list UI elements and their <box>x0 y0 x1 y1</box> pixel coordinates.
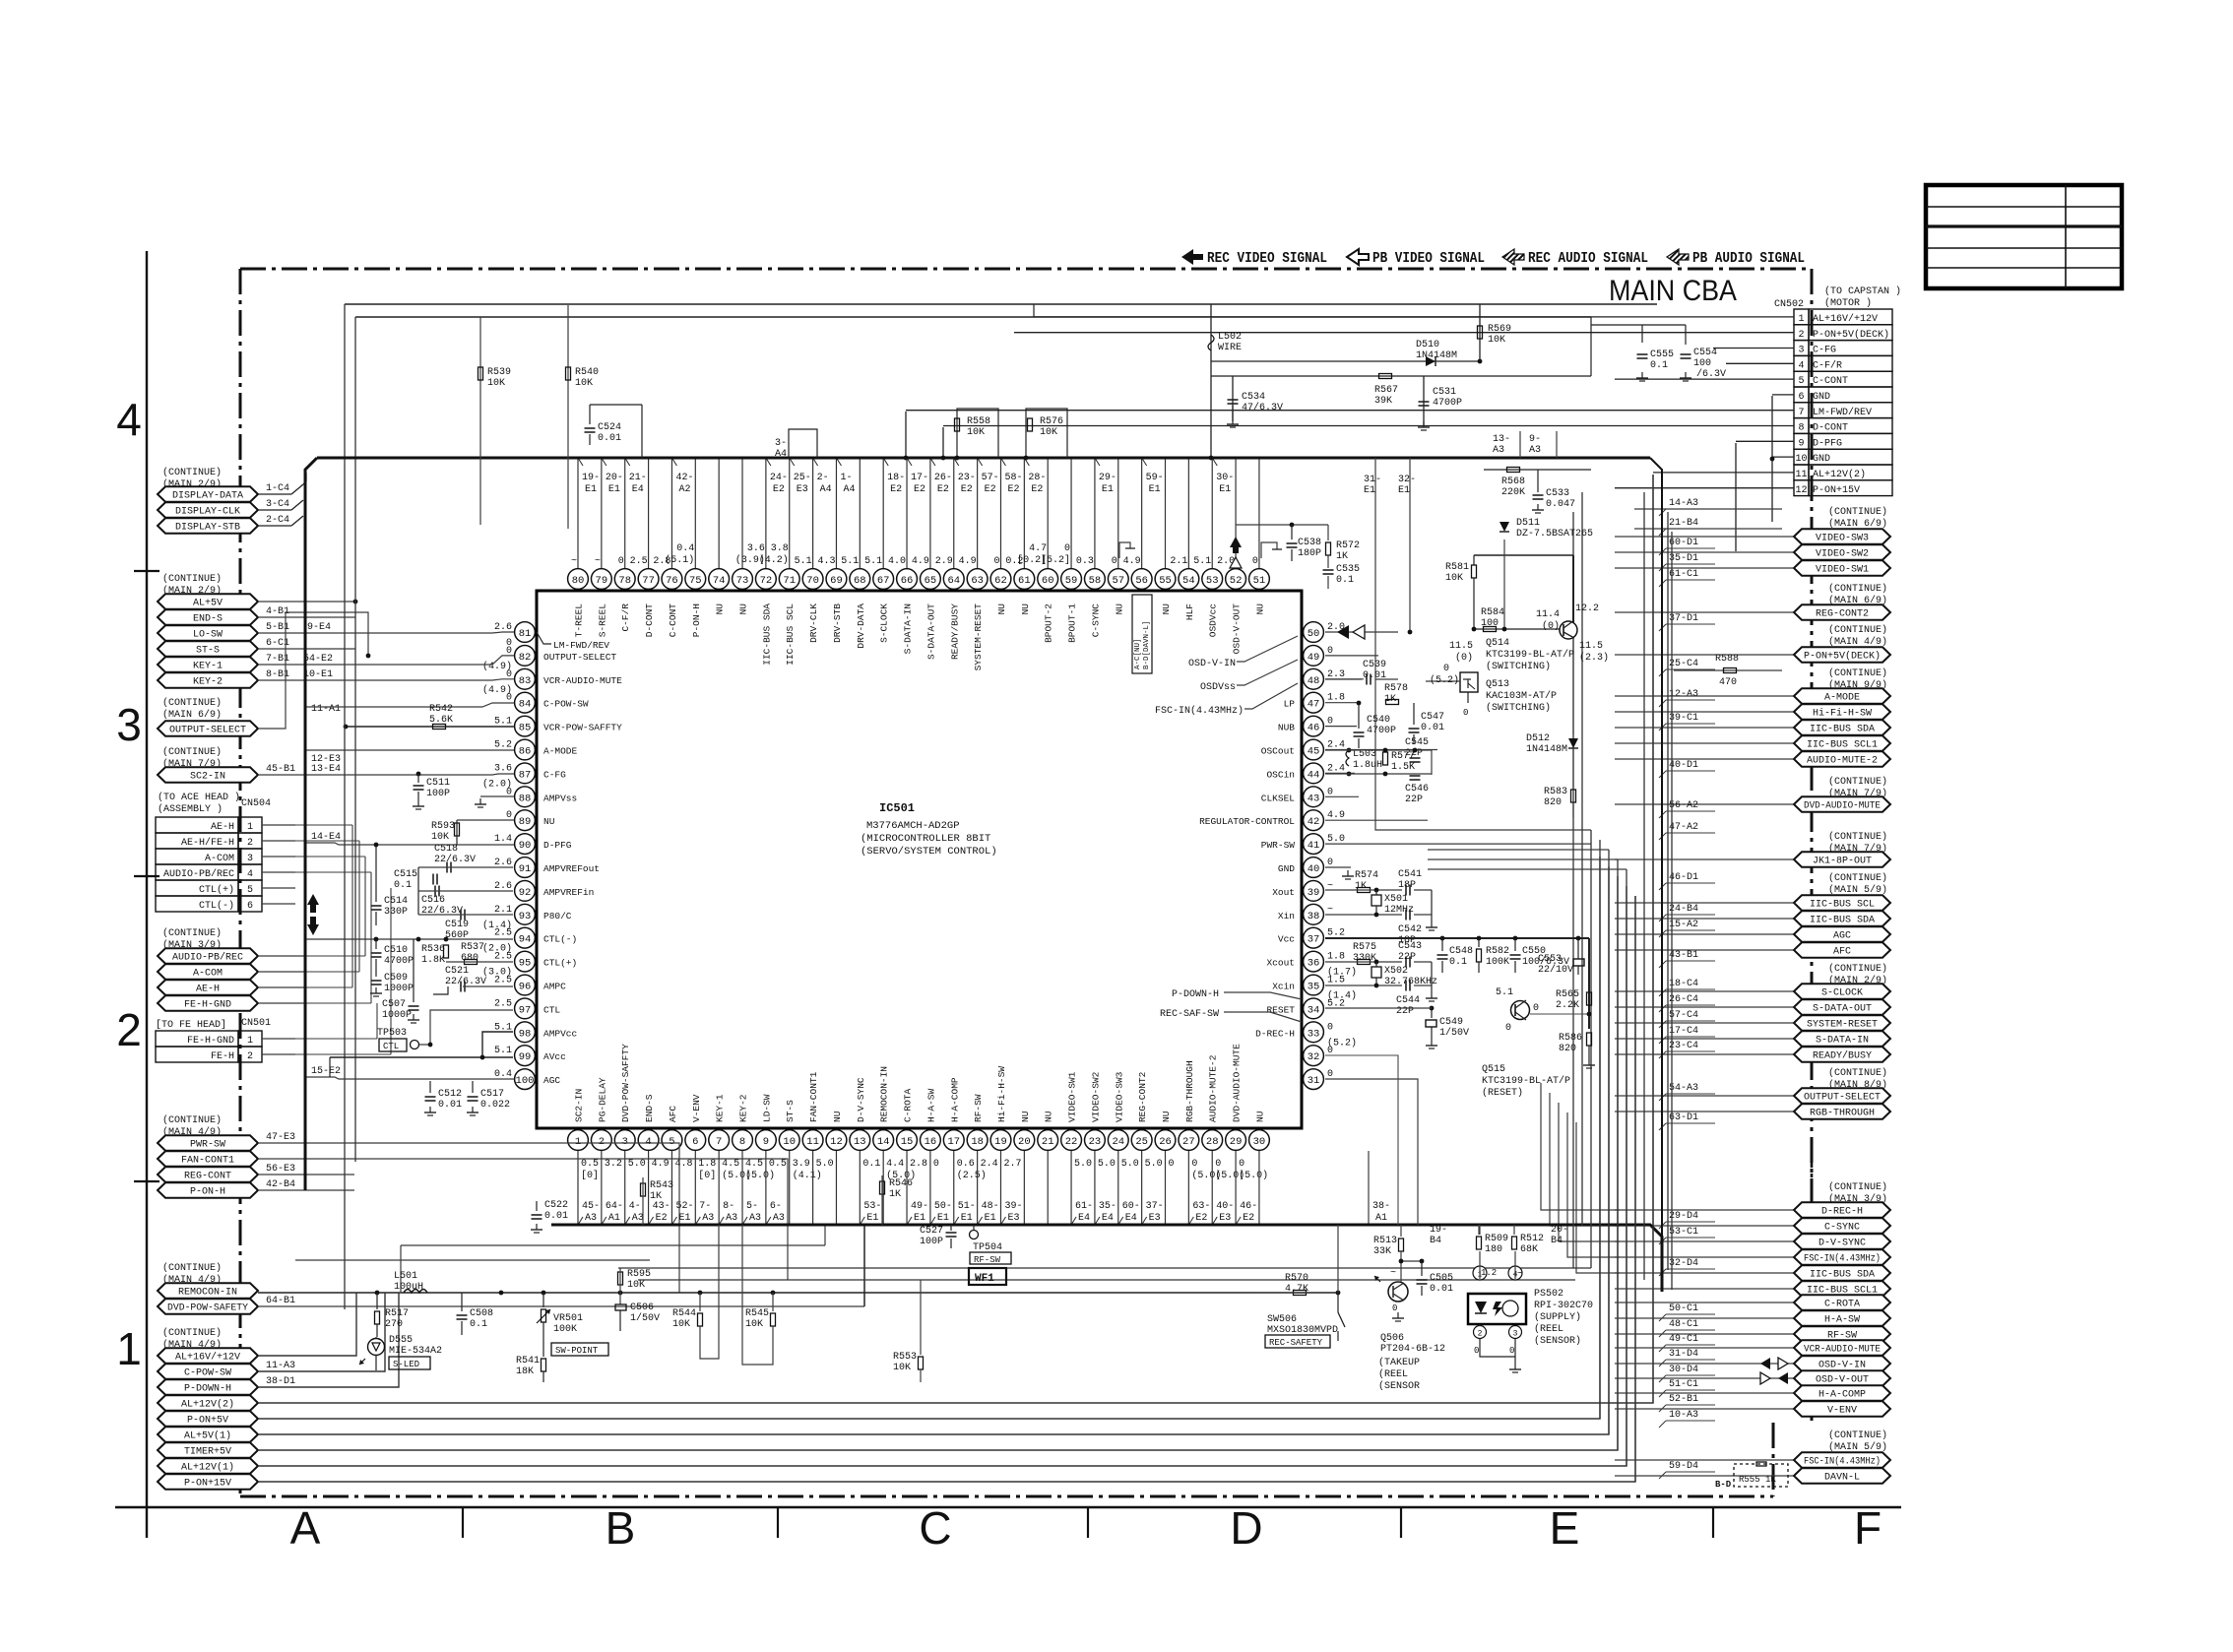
svg-text:1.8K: 1.8K <box>421 955 445 966</box>
svg-text:DVD-AUDIO-MUTE: DVD-AUDIO-MUTE <box>1232 1044 1243 1122</box>
svg-text:H-A-SW: H-A-SW <box>925 1088 936 1122</box>
svg-text:(SUPPLY): (SUPPLY) <box>1534 1311 1581 1323</box>
svg-text:1/50V: 1/50V <box>1439 1027 1469 1039</box>
svg-text:Q506: Q506 <box>1380 1333 1404 1344</box>
svg-text:AE-H: AE-H <box>196 985 220 995</box>
svg-text:FSC-IN(4.43MHz): FSC-IN(4.43MHz) <box>1804 1253 1881 1265</box>
svg-text:KEY-2: KEY-2 <box>738 1094 749 1122</box>
svg-text:E2: E2 <box>1007 484 1019 495</box>
svg-text:E1: E1 <box>1364 485 1375 496</box>
svg-text:81: 81 <box>519 628 532 640</box>
svg-text:52-: 52- <box>675 1201 693 1212</box>
svg-text:87: 87 <box>519 769 532 781</box>
svg-text:4.7: 4.7 <box>1029 543 1047 554</box>
svg-text:DRV-DATA: DRV-DATA <box>856 604 866 649</box>
svg-text:C515: C515 <box>394 869 417 880</box>
svg-text:X501: X501 <box>1384 894 1408 905</box>
svg-text:R512: R512 <box>1520 1234 1544 1244</box>
svg-text:E2: E2 <box>985 484 996 495</box>
svg-text:100K: 100K <box>553 1324 577 1335</box>
svg-text:E4: E4 <box>1125 1213 1137 1224</box>
svg-text:71: 71 <box>783 575 796 587</box>
svg-text:1: 1 <box>116 1323 142 1374</box>
svg-text:C508: C508 <box>470 1308 493 1319</box>
svg-text:1: 1 <box>575 1136 581 1148</box>
svg-text:V-ENV: V-ENV <box>691 1094 702 1122</box>
svg-text:23-C4: 23-C4 <box>1669 1041 1698 1051</box>
svg-text:6: 6 <box>1798 392 1804 403</box>
svg-text:54: 54 <box>1182 575 1195 587</box>
svg-text:S-CLOCK: S-CLOCK <box>879 604 890 643</box>
svg-text:C545: C545 <box>1405 737 1429 748</box>
svg-text:51: 51 <box>1253 575 1266 587</box>
svg-text:Xcin: Xcin <box>1272 982 1295 992</box>
svg-text:(MAIN 5/9): (MAIN 5/9) <box>1828 884 1887 896</box>
svg-text:AL+5V: AL+5V <box>193 599 223 609</box>
svg-text:1.2: 1.2 <box>1481 1268 1497 1278</box>
svg-text:5.1: 5.1 <box>864 556 882 567</box>
svg-text:5.1: 5.1 <box>1496 987 1513 998</box>
svg-text:270: 270 <box>385 1319 403 1330</box>
svg-text:(CONTINUE): (CONTINUE) <box>162 467 222 478</box>
svg-text:10K: 10K <box>1488 335 1505 346</box>
svg-text:0: 0 <box>1252 556 1258 567</box>
svg-text:REC VIDEO SIGNAL: REC VIDEO SIGNAL <box>1207 250 1327 267</box>
svg-text:IIC-BUS SCL1: IIC-BUS SCL1 <box>1807 740 1878 751</box>
svg-text:C505: C505 <box>1430 1273 1453 1284</box>
svg-text:10: 10 <box>783 1136 796 1148</box>
svg-text:D512: D512 <box>1526 733 1550 744</box>
svg-text:PWR-SW: PWR-SW <box>1261 840 1296 851</box>
svg-text:E: E <box>1550 1502 1580 1554</box>
svg-text:38-: 38- <box>1372 1201 1390 1212</box>
svg-text:1-C4: 1-C4 <box>266 483 289 494</box>
svg-text:(TO CAPSTAN ): (TO CAPSTAN ) <box>1824 286 1901 297</box>
svg-text:S-REEL: S-REEL <box>597 604 607 638</box>
svg-text:40-D1: 40-D1 <box>1669 760 1698 771</box>
svg-text:REGULATOR-CONTROL: REGULATOR-CONTROL <box>1199 816 1295 827</box>
svg-text:~: ~ <box>1390 1268 1396 1279</box>
svg-text:43-B1: 43-B1 <box>1669 950 1698 961</box>
svg-text:3: 3 <box>1513 1330 1518 1339</box>
svg-text:NU: NU <box>1114 604 1124 615</box>
svg-text:0: 0 <box>1327 646 1333 657</box>
svg-text:(CONTINUE): (CONTINUE) <box>1828 624 1887 636</box>
svg-text:34: 34 <box>1308 1004 1320 1016</box>
svg-text:35-: 35- <box>1099 1201 1116 1212</box>
svg-text:D-PFG: D-PFG <box>543 840 572 851</box>
svg-text:CN504: CN504 <box>241 798 271 809</box>
svg-text:31: 31 <box>1308 1075 1320 1087</box>
svg-text:17-: 17- <box>911 473 928 483</box>
svg-text:P-DOWN-H: P-DOWN-H <box>1172 989 1219 1000</box>
svg-text:6: 6 <box>247 901 253 912</box>
svg-text:31-: 31- <box>1364 475 1381 485</box>
svg-text:0: 0 <box>1327 858 1333 868</box>
svg-text:11.5: 11.5 <box>1449 641 1473 652</box>
svg-text:2: 2 <box>247 1051 253 1062</box>
svg-text:3.8: 3.8 <box>771 543 789 554</box>
svg-text:OSD-V-OUT: OSD-V-OUT <box>1816 1375 1869 1386</box>
svg-text:OUTPUT-SELECT: OUTPUT-SELECT <box>543 652 616 663</box>
svg-text:OSD-V-IN: OSD-V-IN <box>1818 1361 1866 1371</box>
svg-text:6-: 6- <box>770 1201 782 1212</box>
svg-text:OSCout: OSCout <box>1261 746 1295 757</box>
svg-text:1K: 1K <box>650 1191 662 1202</box>
svg-text:9-: 9- <box>1529 434 1541 445</box>
svg-text:0.01: 0.01 <box>1430 1284 1453 1295</box>
svg-text:15-A2: 15-A2 <box>1669 920 1698 930</box>
svg-text:KTC3199-BL-AT/P: KTC3199-BL-AT/P <box>1482 1075 1570 1087</box>
svg-text:D510: D510 <box>1416 340 1439 350</box>
svg-text:D555: D555 <box>389 1335 413 1346</box>
svg-text:2.4: 2.4 <box>1327 740 1345 751</box>
svg-text:22/6.3V: 22/6.3V <box>445 976 486 987</box>
svg-text:18P: 18P <box>1398 880 1416 891</box>
svg-text:AMPVcc: AMPVcc <box>543 1028 578 1039</box>
svg-text:18K: 18K <box>516 1366 534 1377</box>
svg-text:32: 32 <box>1308 1051 1320 1063</box>
svg-text:FE-H-GND: FE-H-GND <box>187 1036 234 1047</box>
svg-text:C527: C527 <box>920 1226 943 1237</box>
svg-text:SC2-IN: SC2-IN <box>574 1089 585 1122</box>
svg-text:0: 0 <box>933 1159 939 1170</box>
svg-text:26-: 26- <box>934 473 952 483</box>
svg-text:(CONTINUE): (CONTINUE) <box>1828 776 1887 788</box>
svg-text:4.5: 4.5 <box>722 1159 739 1170</box>
svg-text:B4: B4 <box>1430 1236 1441 1246</box>
svg-text:S-LED: S-LED <box>393 1360 419 1369</box>
svg-text:1: 1 <box>1798 314 1804 325</box>
svg-text:E4: E4 <box>1102 1213 1114 1224</box>
svg-text:R570: R570 <box>1285 1273 1308 1284</box>
svg-text:2-C4: 2-C4 <box>266 515 289 526</box>
svg-text:A: A <box>290 1502 321 1554</box>
svg-text:24: 24 <box>1112 1136 1124 1148</box>
svg-text:21-B4: 21-B4 <box>1669 518 1698 529</box>
svg-text:Hi-Fi-H-SW: Hi-Fi-H-SW <box>996 1066 1007 1122</box>
svg-text:GND: GND <box>1278 863 1295 874</box>
svg-text:C554: C554 <box>1693 348 1717 358</box>
svg-text:ST-S: ST-S <box>785 1100 796 1122</box>
svg-text:4: 4 <box>645 1136 651 1148</box>
svg-text:C542: C542 <box>1398 924 1422 935</box>
svg-text:100K: 100K <box>1486 957 1509 968</box>
svg-text:Xout: Xout <box>1272 887 1295 898</box>
svg-text:BPOUT-1: BPOUT-1 <box>1067 604 1078 643</box>
svg-text:2.5: 2.5 <box>494 952 512 963</box>
svg-text:PB AUDIO SIGNAL: PB AUDIO SIGNAL <box>1692 250 1805 267</box>
svg-text:10: 10 <box>1795 454 1807 465</box>
svg-text:R575: R575 <box>1353 942 1376 953</box>
svg-text:4.4: 4.4 <box>886 1159 904 1170</box>
svg-text:(4.1): (4.1) <box>793 1170 822 1181</box>
svg-text:A1: A1 <box>608 1213 620 1224</box>
svg-text:68K: 68K <box>1520 1244 1538 1255</box>
svg-text:24-B4: 24-B4 <box>1669 904 1698 915</box>
svg-text:REC AUDIO SIGNAL: REC AUDIO SIGNAL <box>1528 250 1648 267</box>
svg-text:0: 0 <box>506 669 512 680</box>
svg-text:(CONTINUE): (CONTINUE) <box>1828 583 1887 595</box>
svg-text:66: 66 <box>901 575 914 587</box>
svg-text:E1: E1 <box>914 1213 925 1224</box>
svg-text:D: D <box>1230 1502 1262 1554</box>
svg-text:11-A1: 11-A1 <box>311 704 341 715</box>
svg-text:DAVN-L: DAVN-L <box>1824 1473 1860 1484</box>
svg-text:69: 69 <box>830 575 843 587</box>
svg-text:C546: C546 <box>1405 784 1429 794</box>
svg-text:A-MODE: A-MODE <box>1824 693 1860 704</box>
svg-text:76: 76 <box>666 575 678 587</box>
svg-text:0: 0 <box>618 556 624 567</box>
svg-text:65: 65 <box>925 575 937 587</box>
svg-text:A3: A3 <box>1529 445 1541 456</box>
svg-text:R569: R569 <box>1488 324 1511 335</box>
svg-text:82: 82 <box>519 652 532 664</box>
svg-text:2.5: 2.5 <box>630 556 648 567</box>
svg-text:~: ~ <box>595 556 601 567</box>
svg-text:55: 55 <box>1159 575 1172 587</box>
svg-text:1.8: 1.8 <box>1327 952 1345 963</box>
svg-text:0.1: 0.1 <box>470 1319 487 1330</box>
svg-text:23-: 23- <box>958 473 976 483</box>
svg-text:REMOCON-IN: REMOCON-IN <box>178 1288 237 1299</box>
svg-text:8: 8 <box>1798 423 1804 434</box>
svg-text:10K: 10K <box>487 378 505 389</box>
svg-text:13-: 13- <box>1493 434 1510 445</box>
svg-text:C509: C509 <box>384 973 408 984</box>
svg-text:B-D: B-D <box>1715 1480 1732 1490</box>
svg-text:AL+12V(2): AL+12V(2) <box>1813 469 1866 480</box>
svg-text:28: 28 <box>1206 1136 1219 1148</box>
svg-text:75: 75 <box>689 575 702 587</box>
svg-text:NU: NU <box>1044 1111 1054 1122</box>
svg-text:1N4148M: 1N4148M <box>1526 744 1567 755</box>
svg-text:74: 74 <box>713 575 726 587</box>
svg-text:5.6K: 5.6K <box>429 715 453 726</box>
svg-text:A-COM: A-COM <box>205 854 234 864</box>
svg-text:42-: 42- <box>675 473 693 483</box>
svg-text:WF1: WF1 <box>975 1273 994 1285</box>
svg-text:39: 39 <box>1308 887 1320 899</box>
svg-text:5: 5 <box>1798 376 1804 387</box>
svg-text:27: 27 <box>1182 1136 1195 1148</box>
svg-text:0: 0 <box>1169 1159 1175 1170</box>
svg-text:AMPVREFout: AMPVREFout <box>543 863 600 874</box>
svg-text:53-C1: 53-C1 <box>1669 1227 1698 1238</box>
svg-text:OSCin: OSCin <box>1266 769 1295 780</box>
svg-text:E2: E2 <box>914 484 925 495</box>
svg-text:C522: C522 <box>544 1200 568 1211</box>
svg-text:AGC: AGC <box>543 1075 560 1086</box>
svg-text:4700P: 4700P <box>384 956 414 967</box>
svg-text:45-: 45- <box>582 1201 600 1212</box>
svg-text:~: ~ <box>1517 1269 1523 1280</box>
svg-text:10K: 10K <box>672 1319 690 1330</box>
svg-text:56-E3: 56-E3 <box>266 1164 295 1175</box>
svg-text:3: 3 <box>622 1136 628 1148</box>
svg-text:Vcc: Vcc <box>1278 934 1295 945</box>
svg-text:T-REEL: T-REEL <box>574 604 585 638</box>
svg-text:42-B4: 42-B4 <box>266 1179 295 1190</box>
svg-text:2.1: 2.1 <box>1170 556 1187 567</box>
svg-text:47-A2: 47-A2 <box>1669 822 1698 833</box>
svg-text:4.9: 4.9 <box>959 556 977 567</box>
svg-text:H-A-SW: H-A-SW <box>1824 1315 1860 1326</box>
svg-text:RF-SW: RF-SW <box>974 1255 1001 1265</box>
svg-text:0: 0 <box>1392 1303 1397 1313</box>
svg-text:4.8: 4.8 <box>674 1159 692 1170</box>
svg-text:5.0: 5.0 <box>628 1159 646 1170</box>
svg-text:63-: 63- <box>1192 1201 1210 1212</box>
svg-text:CTL(-): CTL(-) <box>543 934 577 945</box>
svg-text:C547: C547 <box>1421 712 1444 723</box>
svg-text:IIC-BUS SCL: IIC-BUS SCL <box>785 604 796 666</box>
svg-text:51-C1: 51-C1 <box>1669 1379 1698 1390</box>
svg-text:E2: E2 <box>961 484 973 495</box>
svg-text:0.1: 0.1 <box>1449 957 1467 968</box>
svg-text:IC501: IC501 <box>879 801 915 815</box>
svg-text:0.01: 0.01 <box>438 1100 462 1111</box>
svg-text:54-E2: 54-E2 <box>303 654 333 665</box>
svg-text:(CONTINUE): (CONTINUE) <box>1828 1181 1887 1193</box>
svg-text:1.8: 1.8 <box>698 1159 716 1170</box>
svg-text:12-A3: 12-A3 <box>1669 689 1698 700</box>
svg-text:22/10V: 22/10V <box>1538 964 1573 976</box>
svg-text:180P: 180P <box>1298 548 1321 559</box>
svg-text:OSD-V-OUT: OSD-V-OUT <box>1232 604 1243 655</box>
svg-text:(SENSOR): (SENSOR) <box>1534 1335 1581 1347</box>
svg-text:AMPVss: AMPVss <box>543 793 577 803</box>
svg-text:4.9: 4.9 <box>652 1159 670 1170</box>
svg-text:4.7K: 4.7K <box>1285 1284 1308 1295</box>
svg-text:1.4: 1.4 <box>494 834 512 845</box>
svg-text:(4.2): (4.2) <box>759 554 789 566</box>
svg-text:VIDEO-SW3: VIDEO-SW3 <box>1114 1071 1124 1122</box>
svg-text:NU: NU <box>1254 1111 1265 1122</box>
svg-text:A-C[NU]: A-C[NU] <box>1134 638 1142 669</box>
svg-text:48-C1: 48-C1 <box>1669 1319 1698 1330</box>
svg-text:C517: C517 <box>480 1089 504 1100</box>
svg-text:OSDVcc: OSDVcc <box>1208 604 1219 638</box>
svg-text:10K: 10K <box>431 832 449 843</box>
svg-text:E3: E3 <box>1219 1213 1231 1224</box>
svg-text:(MAIN 4/9): (MAIN 4/9) <box>1828 636 1887 648</box>
svg-text:(MAIN 6/9): (MAIN 6/9) <box>162 709 222 721</box>
svg-text:H-A-COMP: H-A-COMP <box>1818 1390 1866 1401</box>
svg-text:40: 40 <box>1308 863 1320 875</box>
svg-text:20-: 20- <box>1551 1225 1568 1236</box>
svg-text:FSC-IN(4.43MHz): FSC-IN(4.43MHz) <box>1155 705 1244 717</box>
svg-text:E2: E2 <box>890 484 902 495</box>
svg-text:CTL: CTL <box>383 1042 399 1051</box>
svg-text:42: 42 <box>1308 816 1320 828</box>
svg-text:READY/BUSY: READY/BUSY <box>1813 1050 1872 1062</box>
svg-text:C516: C516 <box>421 895 445 906</box>
svg-text:[0]: [0] <box>581 1170 599 1181</box>
svg-text:C-SYNC: C-SYNC <box>1090 604 1101 638</box>
svg-text:A4: A4 <box>843 484 855 495</box>
svg-text:52-B1: 52-B1 <box>1669 1394 1698 1405</box>
svg-text:30-: 30- <box>1216 473 1234 483</box>
svg-text:9-E4: 9-E4 <box>307 622 331 633</box>
svg-text:E2: E2 <box>773 484 785 495</box>
svg-text:[TO FE HEAD]: [TO FE HEAD] <box>156 1019 226 1031</box>
svg-text:1.5: 1.5 <box>1327 976 1345 986</box>
svg-text:0: 0 <box>1215 1159 1221 1170</box>
svg-text:NU: NU <box>1254 604 1265 615</box>
svg-text:7: 7 <box>1798 408 1804 418</box>
svg-text:2: 2 <box>247 838 253 849</box>
svg-text:17-C4: 17-C4 <box>1669 1026 1698 1037</box>
svg-text:C549: C549 <box>1439 1017 1463 1028</box>
svg-text:64-: 64- <box>606 1201 623 1212</box>
svg-text:17: 17 <box>947 1136 960 1148</box>
svg-text:820: 820 <box>1559 1044 1576 1054</box>
svg-text:(MOTOR ): (MOTOR ) <box>1824 297 1872 309</box>
svg-text:0: 0 <box>1064 543 1070 554</box>
svg-text:67: 67 <box>877 575 890 587</box>
svg-text:(2.5): (2.5) <box>957 1170 987 1181</box>
svg-text:0.01: 0.01 <box>598 433 621 444</box>
svg-text:A3: A3 <box>726 1213 737 1224</box>
svg-text:3-C4: 3-C4 <box>266 499 289 510</box>
svg-text:(5.0): (5.0) <box>1239 1170 1268 1181</box>
svg-text:A4: A4 <box>820 484 832 495</box>
svg-text:0: 0 <box>1533 1003 1539 1014</box>
svg-text:C540: C540 <box>1367 715 1390 726</box>
svg-text:C-ROTA: C-ROTA <box>903 1088 914 1122</box>
svg-text:4: 4 <box>247 869 253 880</box>
svg-text:10K: 10K <box>627 1280 645 1291</box>
svg-text:R542: R542 <box>429 704 453 715</box>
svg-text:R574: R574 <box>1355 870 1378 881</box>
svg-text:AL+12V(2): AL+12V(2) <box>181 1399 234 1411</box>
svg-text:57-: 57- <box>982 473 999 483</box>
svg-text:C-FG: C-FG <box>543 769 566 780</box>
svg-text:2.6: 2.6 <box>494 622 512 633</box>
svg-text:79: 79 <box>596 575 608 587</box>
svg-text:64-B1: 64-B1 <box>266 1296 295 1306</box>
svg-text:C534: C534 <box>1242 392 1265 403</box>
svg-text:E1: E1 <box>985 1213 996 1224</box>
svg-text:(CONTINUE): (CONTINUE) <box>1828 667 1887 679</box>
svg-text:E3: E3 <box>797 484 808 495</box>
svg-text:0: 0 <box>993 556 999 567</box>
svg-text:R509: R509 <box>1485 1234 1508 1244</box>
svg-text:D-REC-H: D-REC-H <box>1821 1207 1863 1218</box>
svg-text:57-C4: 57-C4 <box>1669 1010 1698 1021</box>
svg-text:D-REC-H: D-REC-H <box>1255 1028 1295 1039</box>
svg-text:D-V-SYNC: D-V-SYNC <box>1818 1239 1866 1249</box>
svg-text:180: 180 <box>1485 1244 1502 1255</box>
svg-text:25-C4: 25-C4 <box>1669 659 1698 669</box>
svg-text:32-: 32- <box>1398 475 1416 485</box>
svg-text:E2: E2 <box>1243 1213 1254 1224</box>
svg-text:12: 12 <box>1795 485 1807 496</box>
svg-text:4.9: 4.9 <box>1327 810 1345 821</box>
svg-text:C-POW-SW: C-POW-SW <box>184 1368 231 1379</box>
svg-text:85: 85 <box>519 723 532 734</box>
svg-text:3-: 3- <box>775 438 787 449</box>
svg-text:NU: NU <box>996 604 1007 615</box>
svg-text:2-: 2- <box>817 473 829 483</box>
svg-text:V-ENV: V-ENV <box>1827 1406 1857 1417</box>
svg-text:5.1: 5.1 <box>841 556 859 567</box>
svg-text:1: 1 <box>247 822 253 833</box>
svg-text:5.1: 5.1 <box>494 1046 512 1056</box>
svg-text:8: 8 <box>739 1136 745 1148</box>
